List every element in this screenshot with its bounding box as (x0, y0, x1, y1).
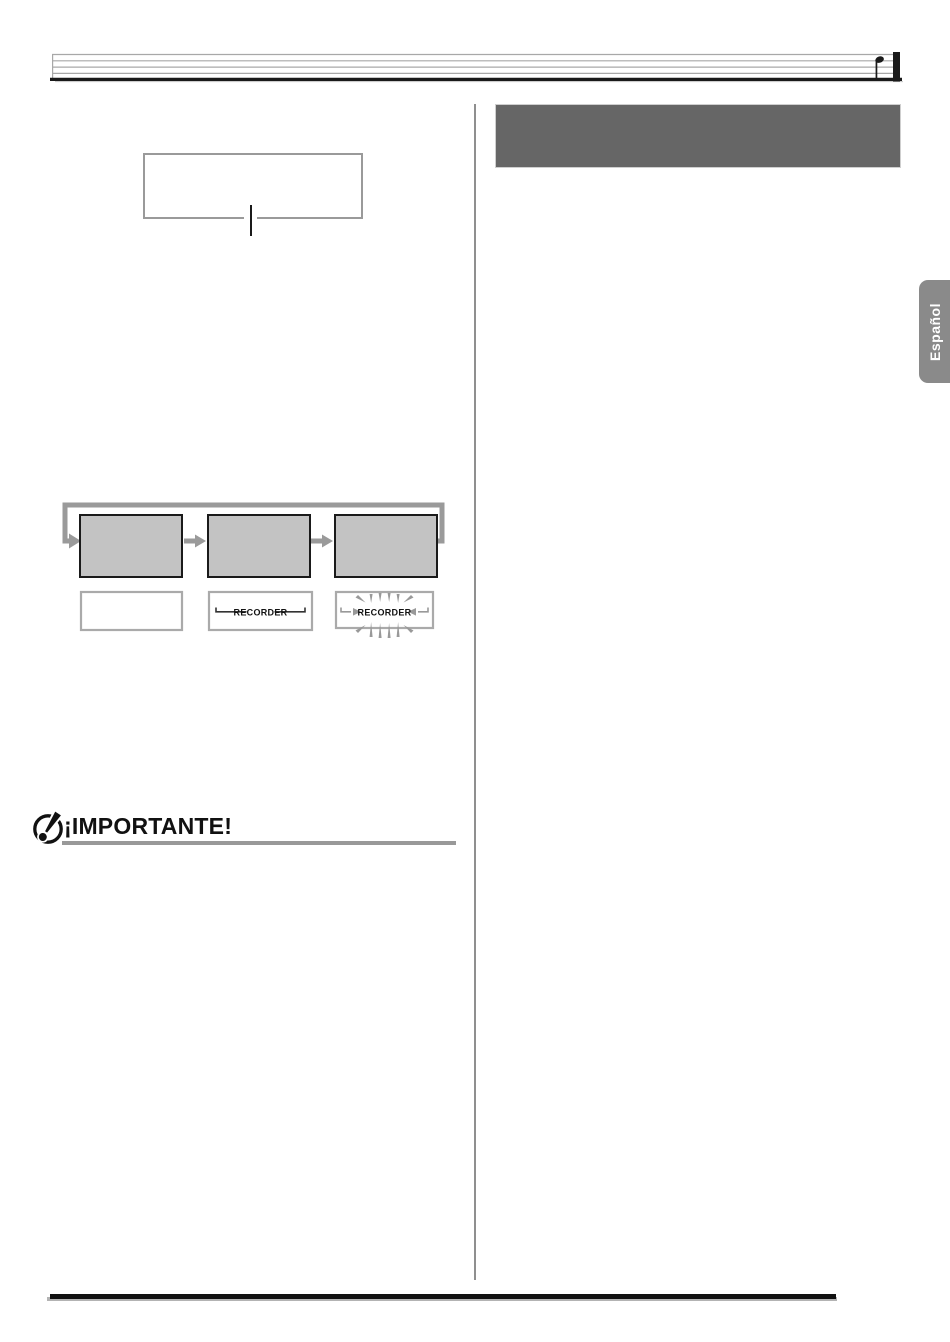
step-box-3 (335, 515, 437, 577)
indicator-box-off (81, 592, 182, 630)
final-barline-icon (893, 52, 900, 82)
right-arrow-icon (184, 535, 206, 548)
step-box-1 (80, 515, 182, 577)
footer-rule (50, 1294, 836, 1299)
important-heading: ¡IMPORTANTE! (64, 813, 232, 840)
section-header-box (496, 105, 900, 167)
language-tab: Español (919, 280, 950, 383)
callout-box (143, 153, 363, 219)
staff-lines-icon (50, 54, 903, 82)
manual-page: RECORDER RECORDER (0, 0, 950, 1342)
language-tab-label: Español (927, 303, 943, 361)
important-rule (62, 841, 456, 845)
step-box-2 (208, 515, 310, 577)
right-arrow-icon (311, 535, 333, 548)
staff-decoration (0, 48, 950, 90)
recorder-cycle-diagram: RECORDER RECORDER (55, 495, 450, 650)
callout-pointer-line (250, 205, 252, 236)
recorder-label: RECORDER (234, 608, 288, 618)
column-divider (474, 104, 476, 1280)
recorder-label: RECORDER (358, 608, 412, 618)
